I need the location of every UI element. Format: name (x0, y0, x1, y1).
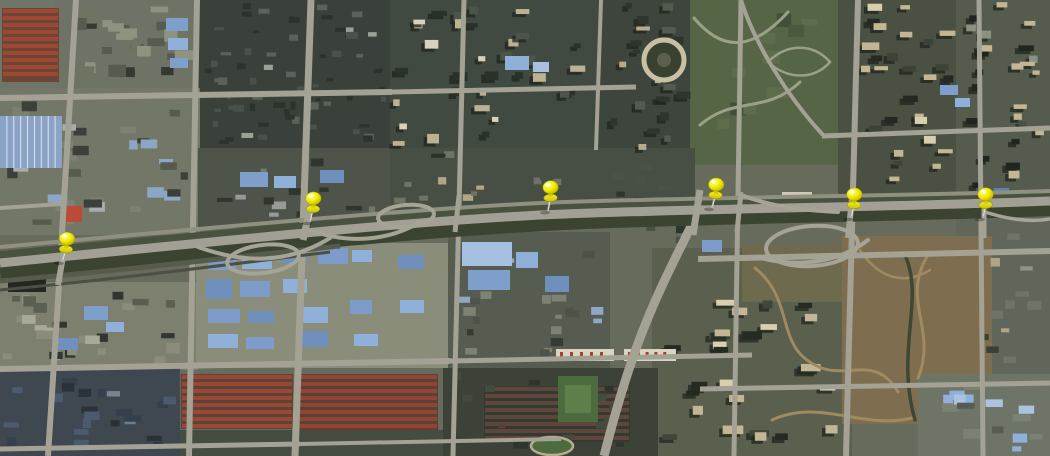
factory-grid-roof (0, 116, 62, 168)
pin-head (543, 181, 559, 195)
rooftops-red-roofs-sw-2 (298, 374, 438, 431)
building (58, 338, 78, 350)
pin-shadow (843, 218, 853, 222)
zone-sw-industrial (0, 282, 198, 370)
rooftops-red-roofs-nw (2, 8, 59, 82)
building (468, 270, 510, 290)
building (352, 250, 372, 262)
satellite-map[interactable] (0, 0, 1050, 456)
rooftops-red-roofs-sw-1 (181, 374, 293, 429)
building (400, 300, 424, 313)
pin-head (847, 188, 862, 201)
building (462, 242, 512, 266)
pin-head (978, 188, 994, 202)
building (398, 255, 424, 269)
building (274, 176, 296, 188)
circular-building (644, 40, 684, 80)
building (66, 206, 82, 222)
zone-dirt-upper (742, 244, 846, 302)
zone-top-mid (598, 0, 694, 165)
building (350, 300, 372, 314)
building (545, 276, 569, 292)
building (318, 248, 348, 264)
building (106, 322, 124, 332)
pin-shadow (302, 222, 312, 226)
building (516, 252, 538, 268)
building (302, 331, 328, 347)
building (955, 98, 970, 107)
building (320, 170, 344, 183)
building (170, 58, 188, 68)
building (240, 281, 270, 297)
building (354, 334, 378, 346)
building (240, 172, 268, 187)
building (533, 62, 549, 72)
building (248, 311, 274, 323)
building (505, 56, 529, 70)
building (208, 309, 240, 323)
building (84, 306, 108, 320)
building (168, 38, 188, 50)
pin-highlight (849, 190, 854, 194)
building (702, 240, 722, 252)
zone-park-ne (690, 0, 840, 165)
map-viewport (0, 0, 1050, 456)
building (206, 279, 232, 299)
sports-field (558, 376, 598, 422)
pin-highlight (308, 194, 313, 198)
building (208, 334, 238, 348)
building (166, 18, 188, 31)
pin-head (708, 178, 724, 192)
pin-head (306, 192, 321, 205)
building (940, 85, 958, 95)
building (246, 337, 274, 349)
